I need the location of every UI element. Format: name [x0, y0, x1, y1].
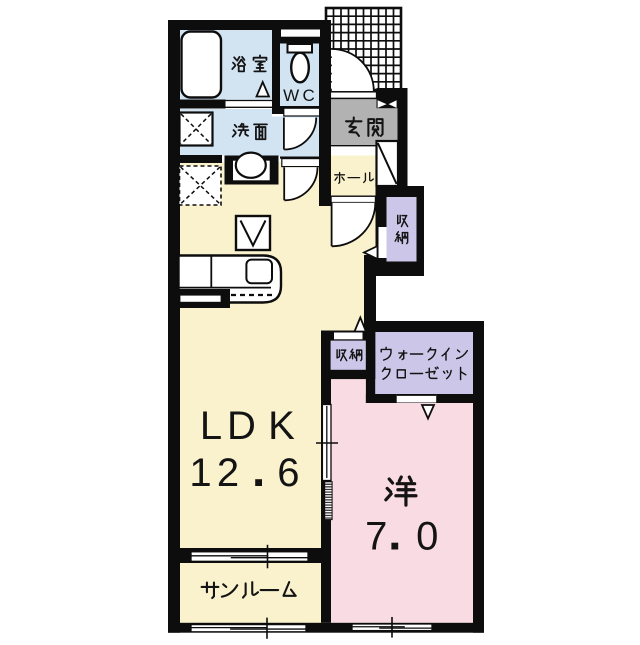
- svg-text:2: 2: [217, 451, 239, 495]
- svg-text:0: 0: [416, 515, 438, 559]
- svg-text:W: W: [283, 86, 299, 105]
- svg-text:C: C: [303, 86, 315, 105]
- svg-text:L: L: [200, 404, 222, 448]
- svg-text:D: D: [227, 404, 256, 448]
- svg-text:1: 1: [189, 451, 211, 495]
- svg-text:K: K: [268, 404, 295, 448]
- svg-text:7: 7: [365, 515, 387, 559]
- svg-text:6: 6: [277, 451, 299, 495]
